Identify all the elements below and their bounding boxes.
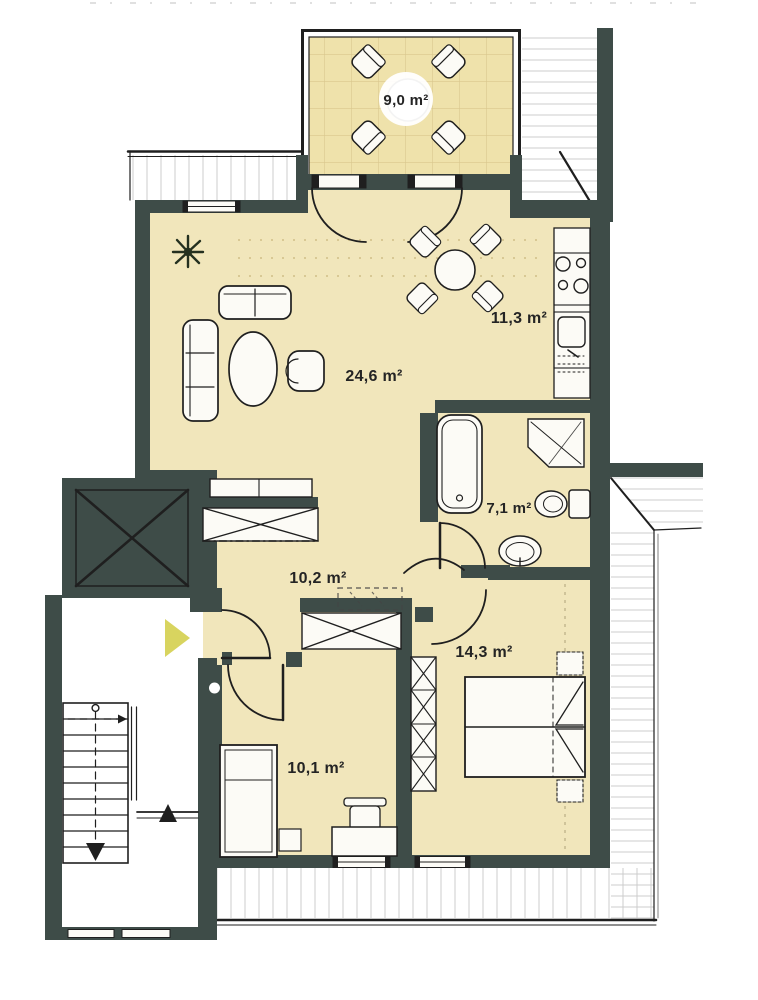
roof-band-top-right: [522, 35, 597, 215]
floor-plan-drawing: 9,0 m²: [0, 0, 758, 1000]
roof-band-bottom: [217, 868, 654, 918]
walkline-arrow-right: [118, 715, 127, 724]
stairs-up-arrow: [159, 804, 177, 822]
wall-pier-top-right: [597, 28, 613, 222]
stairwell-left-wall: [45, 595, 62, 940]
bedroom-small-area-label: 10,1 m²: [287, 760, 344, 777]
balcony-area-label: 9,0 m²: [383, 92, 428, 109]
window: [183, 201, 240, 212]
floor-plan-page: 9,0 m²: [0, 0, 758, 1000]
window: [122, 930, 170, 938]
wall: [135, 200, 150, 483]
toilet-icon: [535, 490, 590, 518]
coffee-table: [229, 332, 277, 406]
wall-stub-hall: [203, 497, 318, 508]
double-bed: [465, 677, 585, 777]
wall: [286, 652, 302, 667]
window: [68, 930, 114, 938]
wall-stub-right: [610, 463, 703, 477]
roof-band-top-left: [130, 155, 302, 200]
roof-band-right: [611, 531, 654, 920]
hallway-area-label: 10,2 m²: [289, 570, 346, 587]
door-hinge-dot: [209, 683, 220, 694]
living-room-area-label: 24,6 m²: [345, 368, 402, 385]
balcony: 9,0 m²: [303, 31, 520, 188]
stairs-down-arrow: [86, 843, 105, 861]
wall: [135, 470, 203, 483]
bathtub-icon: [437, 415, 482, 513]
nightstand: [557, 780, 583, 802]
wall: [190, 588, 222, 612]
kitchen-area-label: 11,3 m²: [491, 310, 547, 327]
sofa-long: [183, 320, 218, 421]
elevator: [62, 478, 200, 598]
wall-right: [590, 200, 610, 868]
bedroom-large-area-label: 14,3 m²: [455, 644, 512, 661]
wall-stub: [415, 607, 433, 622]
dining-table: [435, 250, 475, 290]
entry-arrow-icon: [165, 619, 190, 657]
single-bed: [220, 745, 277, 857]
staircase: [63, 703, 198, 863]
sofa-two-seat: [219, 286, 291, 319]
roof-band-right-top: [611, 477, 703, 531]
walkline-start: [92, 705, 99, 712]
window: [333, 857, 390, 868]
bath-sink-icon: [499, 536, 541, 566]
nightstand: [279, 829, 301, 851]
bathroom-area-label: 7,1 m²: [486, 500, 531, 517]
hall-wardrobe: [203, 508, 318, 541]
wall-bath-top: [435, 400, 592, 413]
nightstand: [557, 652, 583, 675]
wall-bath-left: [420, 413, 438, 522]
sideboard: [210, 479, 312, 497]
wardrobe: [302, 613, 401, 649]
wardrobe: [411, 657, 436, 791]
window: [415, 857, 470, 868]
wall: [190, 483, 203, 588]
armchair: [286, 351, 324, 391]
